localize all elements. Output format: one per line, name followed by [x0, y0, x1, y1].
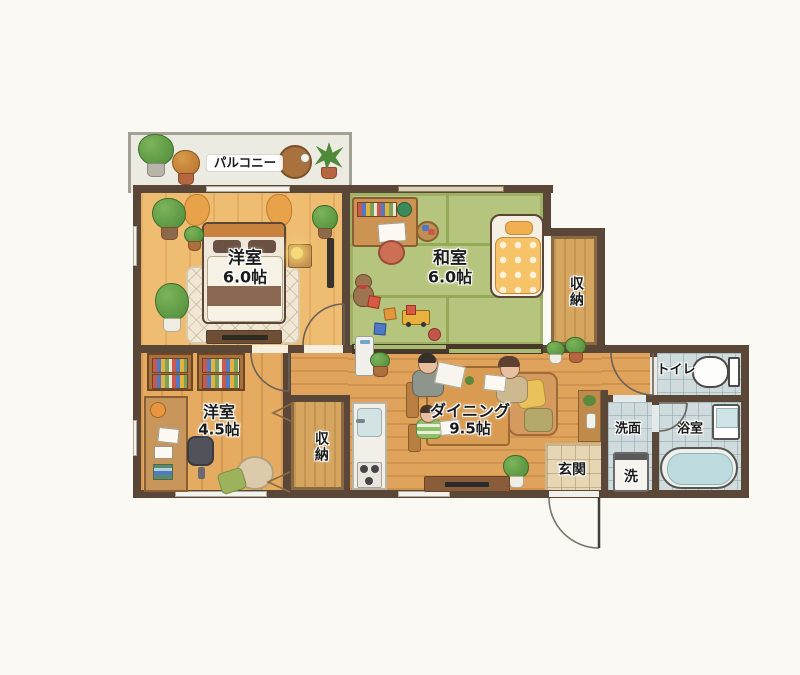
- book-stack-icon: [153, 464, 173, 480]
- shoe-cabinet: [578, 390, 601, 442]
- washer-label: 洗: [624, 470, 638, 486]
- paper-icon: [157, 427, 179, 444]
- wall-right: [741, 345, 749, 498]
- floor-plan: パルコニー: [0, 0, 800, 675]
- vase-icon: [586, 413, 596, 429]
- wall-entrance-washroom: [601, 390, 608, 490]
- bookshelf: [197, 353, 245, 391]
- balcony-shrub-icon: [172, 150, 200, 185]
- futon-blanket: [495, 237, 541, 294]
- room-label-closet-lower: 収納: [312, 431, 328, 463]
- washroom-doorway: [613, 395, 646, 402]
- bathtub: [660, 447, 738, 489]
- bedroom-plant-icon: [152, 198, 186, 240]
- wall-toilet-top: [597, 345, 749, 353]
- room-label-balcony: パルコニー: [207, 155, 283, 171]
- balcony-slider-window: [206, 186, 290, 192]
- front-doorway: [549, 491, 599, 497]
- nightstand: [288, 244, 312, 268]
- hall-right-floor: [601, 353, 650, 398]
- room-label-washitsu: 和室6.0帖: [428, 250, 472, 287]
- desk-lamp-icon: [150, 402, 166, 418]
- hall-left-floor: [291, 353, 348, 398]
- balcony-spiky-plant-icon: [314, 142, 344, 179]
- bedroom-tv-stand: [206, 330, 282, 344]
- coffee-cup-icon: [300, 153, 310, 163]
- office-chair: [187, 436, 214, 466]
- faucet-icon: [356, 419, 365, 423]
- washitsu-desk: [352, 197, 418, 247]
- wall-bedroom-washitsu: [342, 193, 350, 353]
- bathroom-doorway: [652, 405, 659, 432]
- washing-machine: 洗: [613, 452, 649, 492]
- room-label-bedroom: 洋室6.0帖: [223, 250, 267, 287]
- paper-icon: [483, 374, 507, 392]
- bedroom-plant-icon: [184, 226, 204, 251]
- duvet-band: [207, 286, 281, 306]
- wall-tv-icon: [327, 238, 334, 288]
- bedroom-plant-icon: [312, 205, 338, 239]
- left-window-bedroom: [133, 226, 137, 266]
- wall-western-right: [283, 353, 291, 498]
- toilet-fixture: [692, 355, 740, 389]
- washitsu-window: [398, 186, 504, 192]
- toilet-tank: [728, 357, 740, 387]
- table-plant-icon: [465, 376, 474, 385]
- kitchen-counter: [352, 402, 387, 490]
- room-label-washroom: 洗面: [615, 423, 641, 438]
- balcony-table-icon: [278, 145, 312, 179]
- wall-closet-lower-right: [344, 400, 350, 490]
- toy-ball-icon: [428, 328, 441, 341]
- bathroom-sink: [712, 404, 740, 440]
- headboard: [204, 224, 284, 237]
- futon-pillow-icon: [505, 221, 533, 235]
- cabinet-plant-icon: [583, 395, 596, 406]
- tv-icon: [445, 482, 489, 487]
- hall-plant-icon: [546, 341, 565, 364]
- hall-plant-icon: [565, 337, 586, 363]
- father-figure: [410, 354, 444, 398]
- room-label-western-room: 洋室4.5帖: [198, 404, 240, 439]
- left-window-western: [133, 420, 137, 456]
- stove: [357, 462, 382, 488]
- room-label-bathroom: 浴室: [677, 423, 703, 438]
- room-label-dining: ダイニング9.5帖: [430, 403, 510, 438]
- toy-block-icon: [373, 322, 386, 335]
- wall-closet-lower-top: [283, 395, 350, 402]
- bath-water: [667, 453, 733, 485]
- toy-block-icon: [383, 307, 397, 321]
- dining-tv-stand: [424, 476, 510, 492]
- toy-basket-icon: [416, 221, 439, 242]
- bedroom-doorway: [304, 345, 343, 353]
- western-desk: [144, 396, 188, 492]
- toy-block-icon: [367, 295, 381, 309]
- futon: [490, 214, 544, 298]
- balcony-plant-icon: [138, 134, 174, 177]
- stool-icon: [378, 240, 405, 265]
- kitchen-sink: [357, 408, 382, 437]
- wall-closet-upper-top: [543, 228, 605, 236]
- lamp-icon: [291, 247, 303, 259]
- room-label-closet-upper: 収納: [567, 276, 583, 308]
- bedroom-plant-icon: [155, 283, 189, 332]
- wall-closet-upper-right: [597, 228, 605, 353]
- room-label-toilet: トイレ: [656, 364, 695, 379]
- mother-figure: [488, 358, 528, 406]
- room-label-entrance: 玄関: [558, 463, 586, 479]
- bookshelf: [147, 353, 193, 391]
- dining-plant-stand-icon: [370, 352, 390, 377]
- desk-lamp-icon: [397, 202, 412, 217]
- cushion-icon: [524, 408, 553, 432]
- front-door-arc: [549, 498, 599, 548]
- toy-truck-icon: [402, 310, 430, 325]
- toilet-bowl: [692, 356, 729, 388]
- western-room-doorway: [252, 345, 288, 353]
